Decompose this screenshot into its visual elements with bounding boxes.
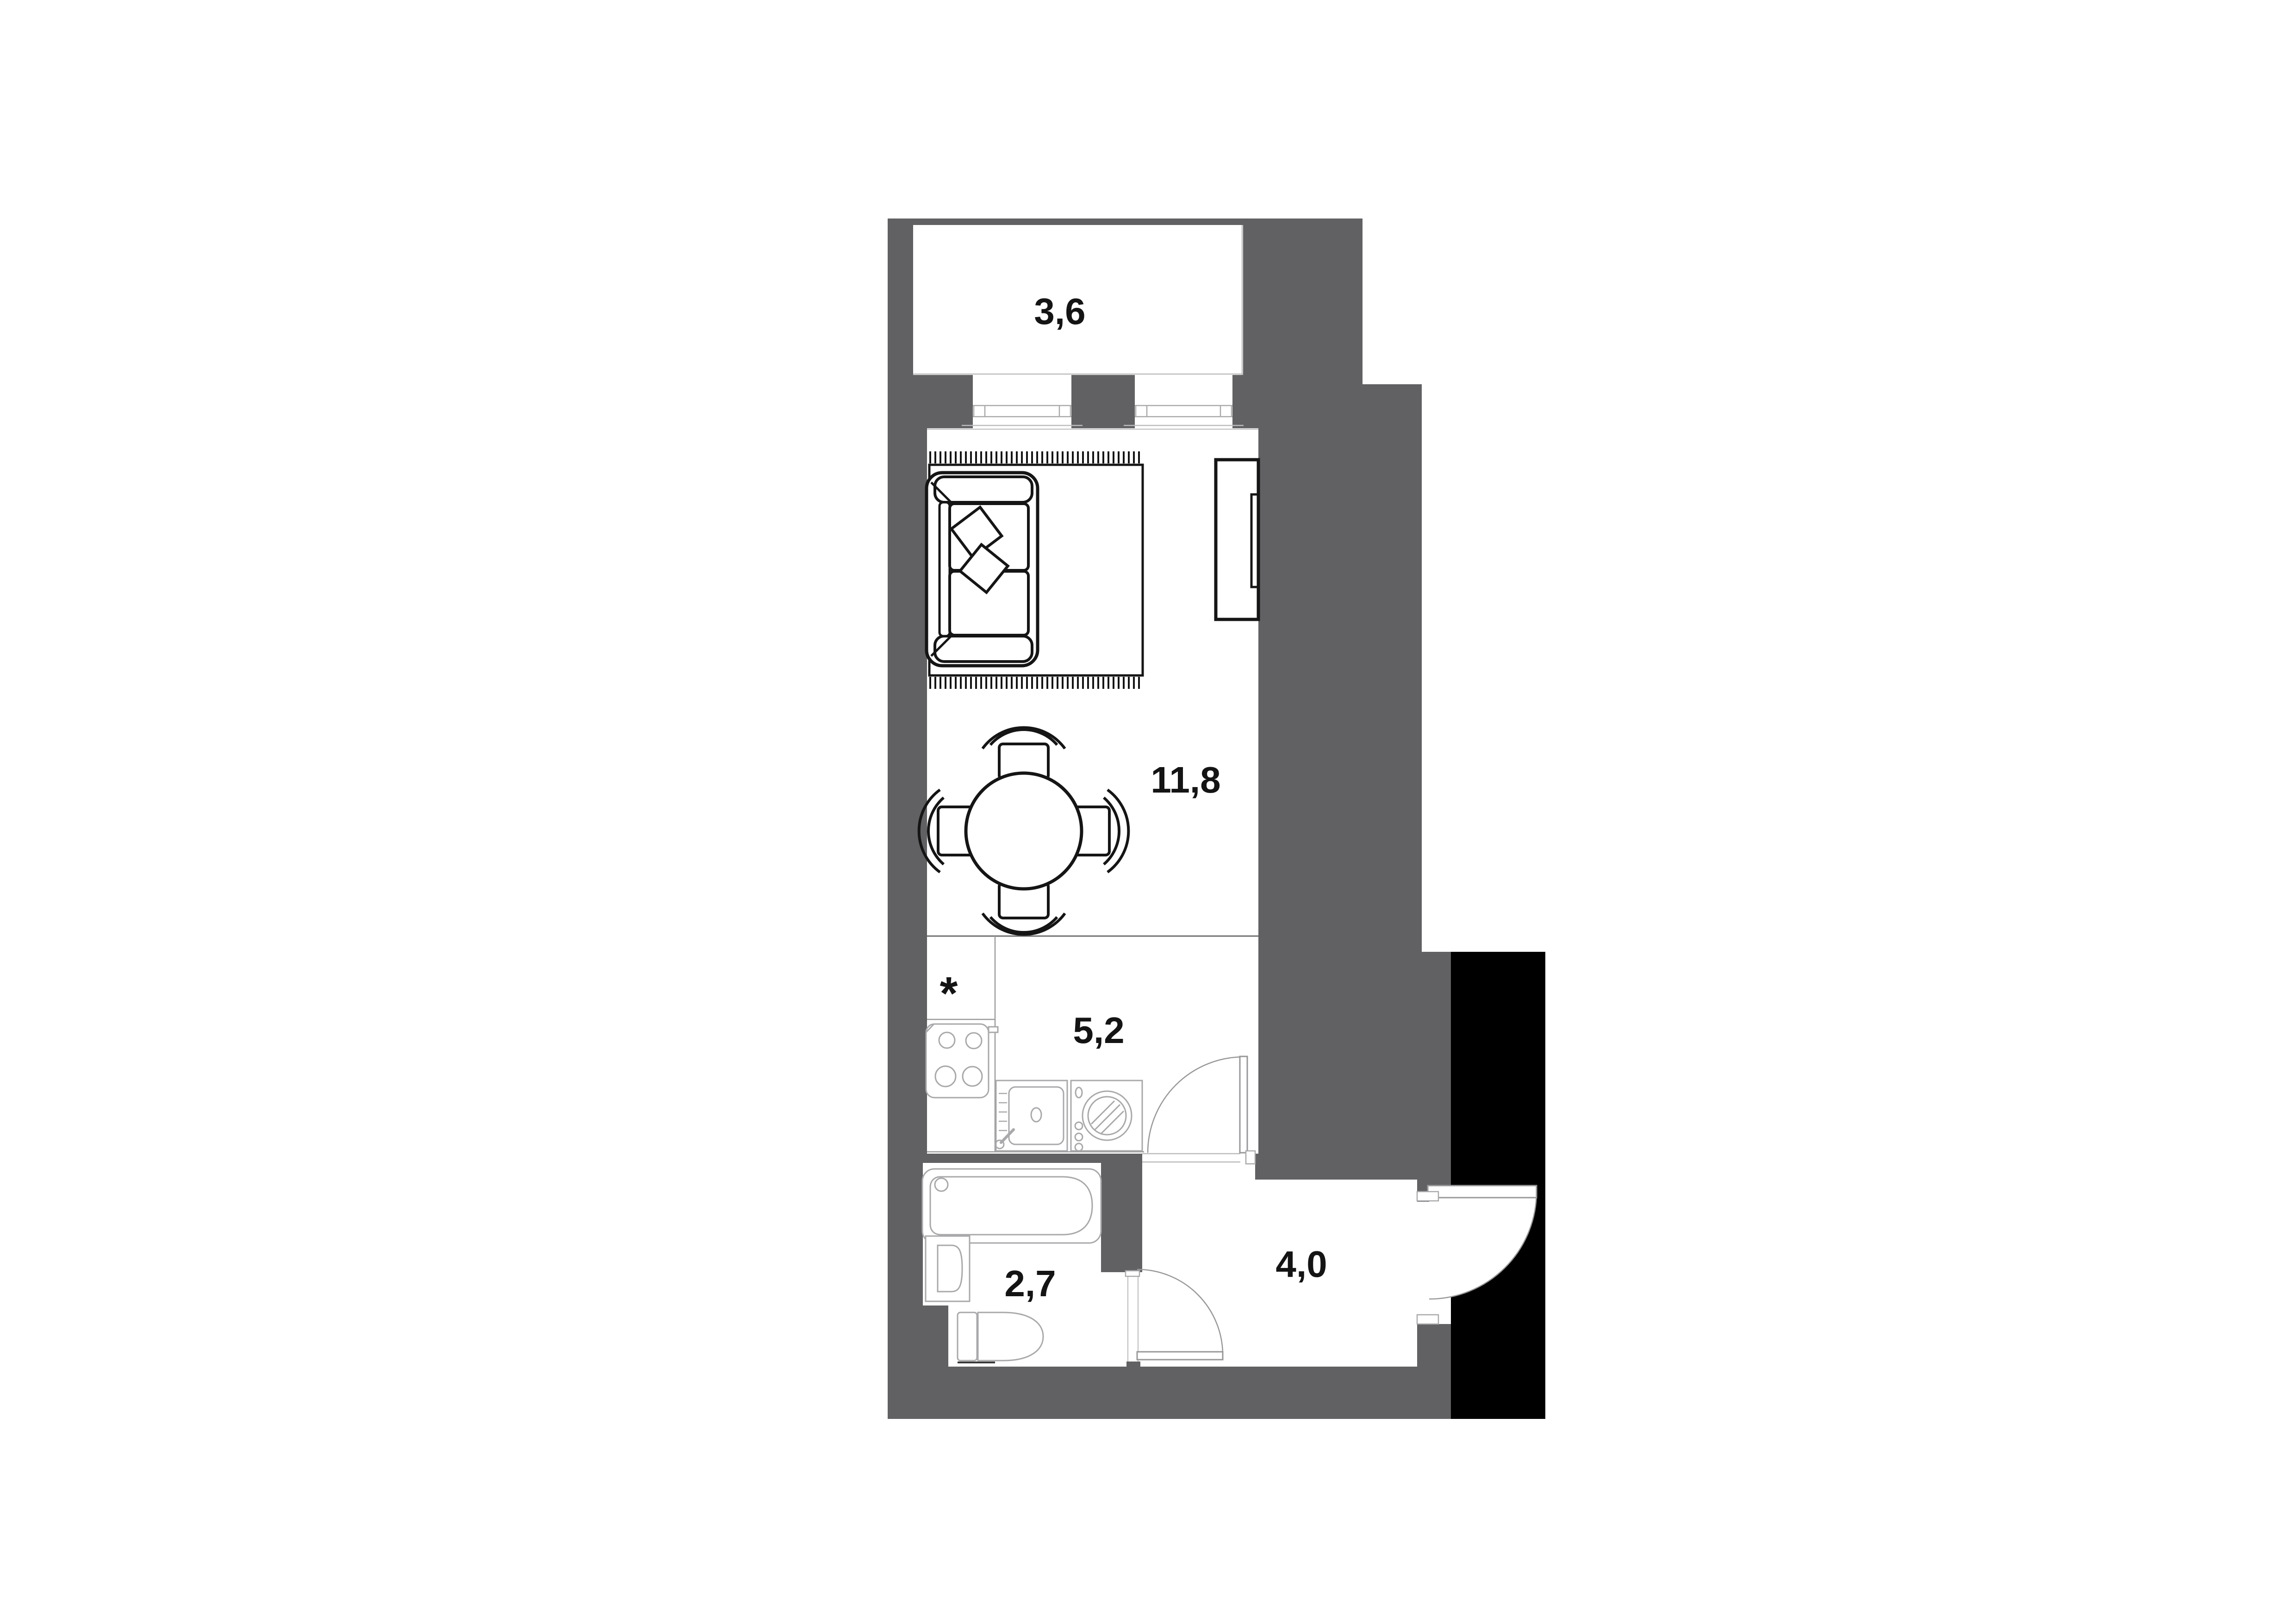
kitchen-footnote-marker: *	[940, 968, 958, 1019]
toilet-bowl	[978, 1312, 1043, 1361]
sofa-backrest	[940, 502, 950, 636]
tv	[1251, 494, 1258, 587]
bathroom-door-frame-top	[1126, 1271, 1139, 1276]
area-label-balcony: 3,6	[1034, 291, 1085, 332]
kitchen-door-frame	[1246, 1151, 1255, 1164]
wall-east-lower	[1258, 952, 1451, 1180]
washbasin	[926, 1236, 970, 1301]
wall-duct-block	[1101, 1163, 1142, 1272]
bathtub	[922, 1169, 1101, 1243]
cooktop-handle	[989, 1027, 998, 1032]
wall-bath-step	[888, 1305, 948, 1367]
kitchen-sink-unit	[996, 1081, 1067, 1151]
window-opening-left	[973, 375, 1071, 428]
washing-machine	[1071, 1081, 1142, 1151]
entrance-door-leaf	[1428, 1186, 1537, 1198]
toilet-tank	[958, 1312, 977, 1361]
entrance-door-frame-top	[1417, 1192, 1438, 1201]
dining-table	[966, 773, 1082, 889]
tv-unit	[1216, 460, 1258, 619]
area-label-kitchen: 5,2	[1073, 1010, 1124, 1051]
cooktop	[926, 1024, 998, 1098]
entrance-door-frame-bottom	[1417, 1315, 1438, 1324]
toilet	[958, 1312, 1043, 1362]
area-label-living-room: 11,8	[1151, 759, 1220, 800]
sofa-armrest-bottom	[935, 636, 1032, 662]
bathroom-doorway-gap	[1126, 1276, 1142, 1362]
kitchen-door-leaf	[1240, 1056, 1247, 1153]
area-label-hallway: 4,0	[1276, 1243, 1327, 1285]
sofa-armrest-top	[935, 477, 1032, 502]
wall-window-band-step	[1363, 384, 1422, 428]
wall-bottom	[888, 1367, 1451, 1419]
wall-hall-north	[1255, 1154, 1451, 1180]
wall-window-band	[888, 375, 1363, 428]
sofa	[927, 473, 1038, 666]
floor-plan: 3,6 11,8 5,2 2,7 4,0 *	[0, 0, 2296, 1624]
kitchen-door-threshold	[1142, 1153, 1255, 1163]
wall-left	[888, 428, 927, 1367]
area-label-bathroom: 2,7	[1004, 1263, 1056, 1304]
wall-east-upper	[1258, 428, 1422, 952]
wall-door-stub	[1126, 1362, 1140, 1371]
kitchen-sink	[1009, 1087, 1064, 1144]
bathroom-door-leaf	[1137, 1352, 1223, 1360]
window-opening-right	[1135, 375, 1232, 428]
